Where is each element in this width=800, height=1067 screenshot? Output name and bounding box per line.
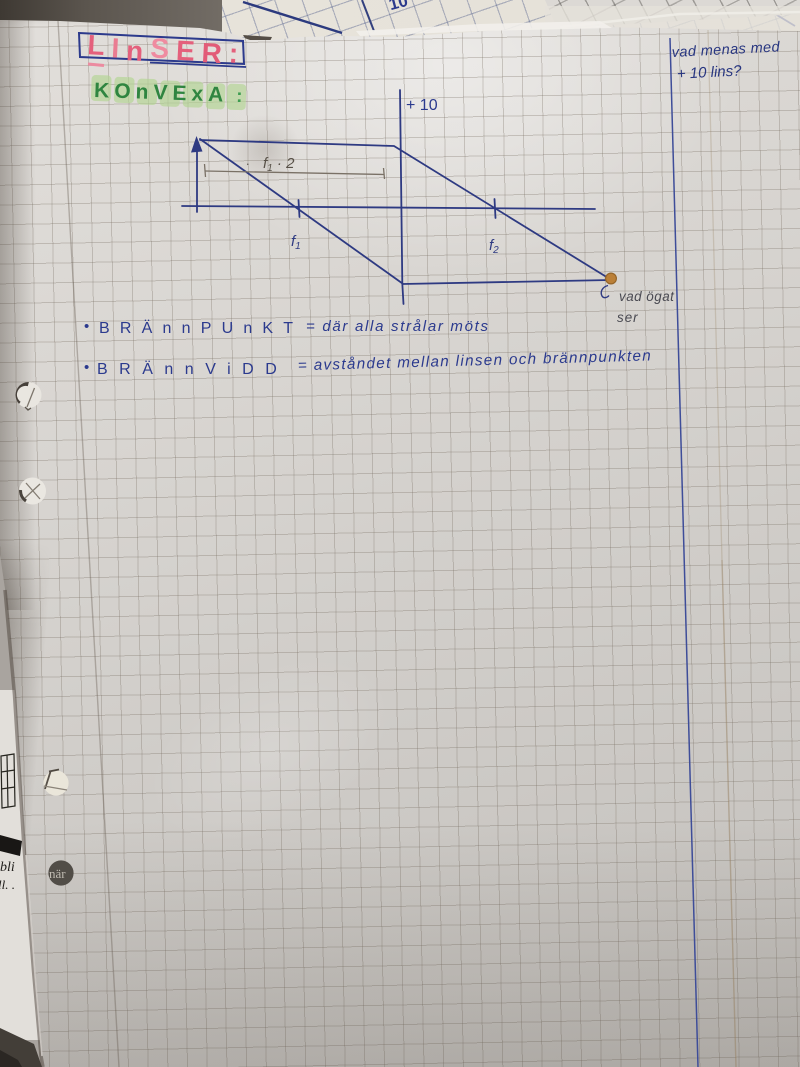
svg-text:vad ögat: vad ögat <box>619 289 675 304</box>
svg-text:BRÄnnPUnKT: BRÄnnPUnKT <box>99 319 303 337</box>
svg-text:när: när <box>49 866 66 881</box>
svg-text:+ 10: + 10 <box>406 97 438 114</box>
svg-text:= där alla strålar möts: = där alla strålar möts <box>306 318 490 335</box>
svg-text:LInSER:: LInSER: <box>87 29 247 72</box>
svg-text:BRÄnnViDD: BRÄnnViDD <box>97 360 288 378</box>
svg-text:KOnVExA:: KOnVExA: <box>94 79 248 107</box>
svg-text:+ 10 lins?: + 10 lins? <box>676 62 742 82</box>
svg-text:f2: f2 <box>489 237 499 256</box>
svg-text:= avståndet mellan linsen och: = avståndet mellan linsen och brännpunkt… <box>298 347 653 374</box>
svg-text:f1: f1 <box>291 233 301 252</box>
svg-text:vad menas med: vad menas med <box>671 39 781 61</box>
svg-text:.: . <box>246 153 250 168</box>
svg-text:•: • <box>84 359 89 376</box>
svg-text:•: • <box>84 318 89 335</box>
svg-text:f1 · 2: f1 · 2 <box>263 155 295 174</box>
svg-text:ser: ser <box>617 310 639 325</box>
